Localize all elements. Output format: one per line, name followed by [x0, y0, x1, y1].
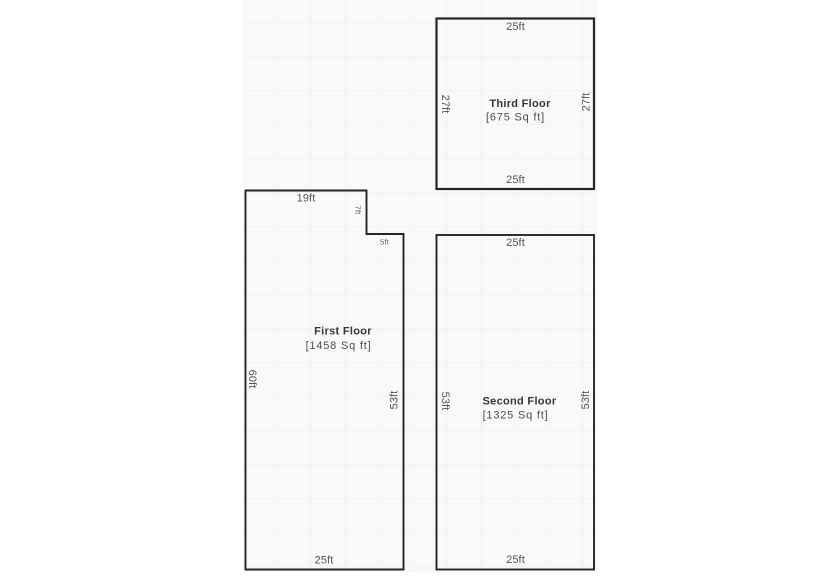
svg-text:53ft: 53ft	[580, 391, 592, 410]
svg-text:25ft: 25ft	[506, 237, 525, 249]
svg-text:5ft: 5ft	[380, 238, 390, 247]
svg-text:[1458 Sq ft]: [1458 Sq ft]	[306, 340, 372, 352]
svg-text:27ft: 27ft	[581, 93, 593, 112]
svg-text:25ft: 25ft	[506, 174, 525, 186]
svg-text:Second Floor: Second Floor	[483, 396, 557, 408]
svg-text:First Floor: First Floor	[314, 326, 372, 338]
svg-text:25ft: 25ft	[506, 554, 525, 566]
svg-text:[675 Sq ft]: [675 Sq ft]	[486, 112, 545, 124]
svg-text:[1325 Sq ft]: [1325 Sq ft]	[483, 410, 549, 422]
svg-text:27ft: 27ft	[439, 95, 451, 114]
svg-text:19ft: 19ft	[297, 193, 316, 205]
svg-text:7ft: 7ft	[354, 206, 363, 216]
svg-text:60ft: 60ft	[246, 370, 258, 389]
svg-text:Third Floor: Third Floor	[489, 98, 551, 110]
svg-text:53ft: 53ft	[439, 392, 451, 411]
svg-text:25ft: 25ft	[315, 555, 334, 567]
svg-text:25ft: 25ft	[506, 21, 525, 33]
svg-text:53ft: 53ft	[389, 391, 401, 410]
